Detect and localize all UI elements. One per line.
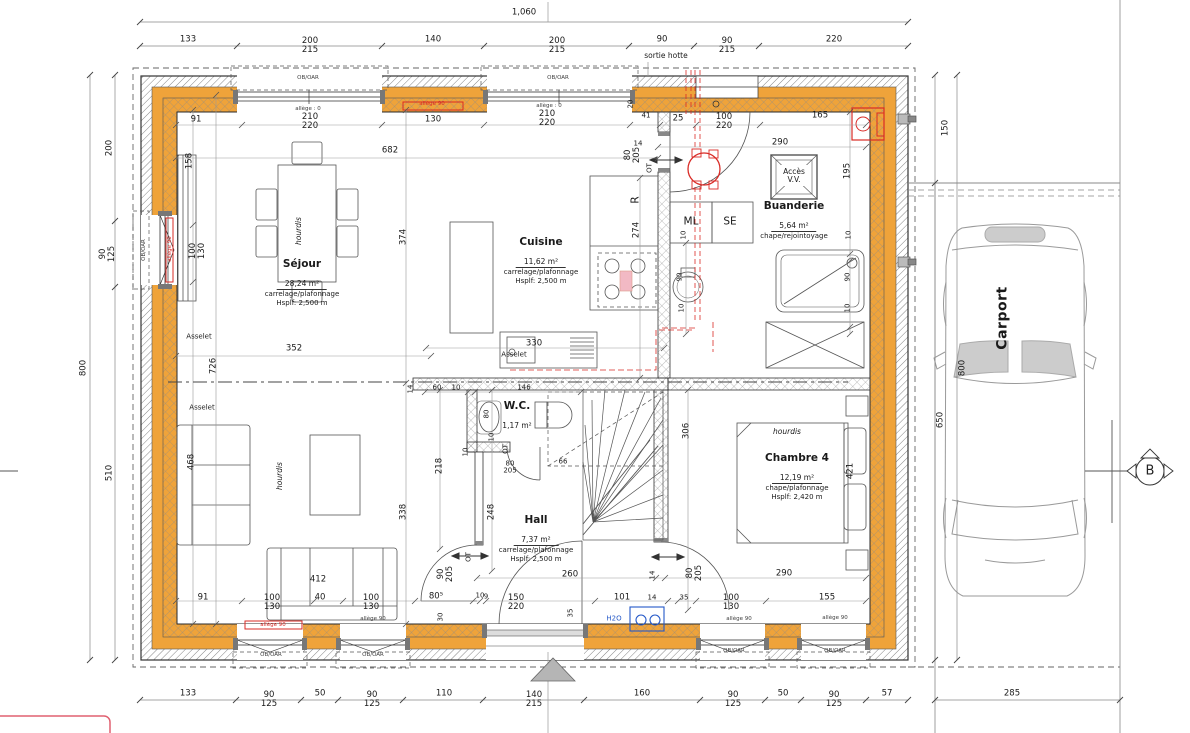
dimension-label: 140 — [425, 36, 441, 45]
dimension-label: 90 125 — [725, 691, 741, 709]
room-area: 28,24 m² — [277, 279, 327, 290]
annotation-label: allège 90 — [168, 236, 174, 261]
room-name: Buanderie — [760, 200, 828, 213]
dimension-label: 510 — [106, 465, 115, 481]
dimension-label: 1,060 — [512, 9, 536, 18]
dimension-label: 10 — [462, 448, 469, 457]
dimension-label: 14 — [407, 385, 414, 394]
room-finish: carrelage/plafonnage — [265, 290, 340, 299]
dimension-label: 80⁵ — [429, 593, 443, 602]
annotation-label: hourdis — [773, 428, 801, 436]
annotation-label: Accès V.V. — [783, 168, 805, 184]
dimension-label: 90 215 — [719, 37, 735, 55]
dimension-label: 30 — [437, 613, 444, 622]
dimension-label: 133 — [180, 36, 196, 45]
dimension-label: 800 — [80, 360, 89, 376]
dimension-label: 20 — [627, 100, 634, 109]
dimension-label: 682 — [382, 147, 398, 156]
room-label-chambre4: Chambre 4 12,19 m² chape/plafonnage Hspl… — [765, 452, 829, 502]
dimension-label: 290 — [776, 570, 792, 579]
annotation-label: Asselet — [501, 351, 526, 358]
dimension-label: 80 205 — [686, 565, 704, 581]
dimension-label: OT — [465, 552, 472, 562]
dimension-label: 50 — [315, 690, 326, 699]
room-label-cuisine: Cuisine 11,62 m² carrelage/plafonnage Hs… — [504, 236, 579, 286]
dimension-label: 90 125 — [826, 691, 842, 709]
room-label-sejour: Séjour 28,24 m² carrelage/plafonnage Hsp… — [265, 258, 340, 308]
room-area: 11,62 m² — [516, 257, 566, 268]
dimension-label: 200 215 — [302, 37, 318, 55]
room-label-wc: W.C. 1,17 m² — [494, 400, 539, 432]
room-name: W.C. — [494, 400, 539, 413]
dimension-label: 10 — [488, 433, 495, 442]
annotation-label: hourdis — [276, 462, 284, 490]
dimension-label: 41 — [642, 112, 651, 119]
dimension-label: 90 125 — [261, 691, 277, 709]
dimension-label: 726 — [210, 358, 219, 374]
labels-layer: Séjour 28,24 m² carrelage/plafonnage Hsp… — [0, 0, 1190, 733]
room-height: Hsplf: 2,420 m — [765, 493, 829, 502]
dimension-label: 101 — [614, 594, 630, 603]
dimension-label: 220 — [826, 36, 842, 45]
dimension-label: 200 215 — [549, 37, 565, 55]
room-height: Hsplf: 2,500 m — [504, 277, 579, 286]
dimension-label: 10 — [452, 384, 461, 391]
annotation-label: allège 90 — [726, 617, 751, 623]
annotation-label: R — [630, 196, 641, 203]
dimension-label: 800 — [959, 360, 968, 376]
dimension-label: 91 — [198, 594, 209, 603]
dimension-label: 130 — [425, 116, 441, 125]
dimension-label: 248 — [488, 504, 497, 520]
dimension-label: 160 — [634, 690, 650, 699]
dimension-label: 150 220 — [508, 594, 524, 612]
dimension-label: 91 — [191, 116, 202, 125]
annotation-label: OB/OAR — [142, 239, 148, 261]
dimension-label: 352 — [286, 345, 302, 354]
dimension-label: 100 130 — [363, 594, 379, 612]
annotation-label: OB/OAR — [824, 649, 846, 655]
dimension-label: 285 — [1004, 690, 1020, 699]
section-marker-b: B — [1146, 464, 1155, 479]
annotation-label: SE — [723, 216, 736, 227]
annotation-label: allège 90 — [260, 623, 285, 629]
dimension-label: 421 — [847, 463, 856, 479]
room-finish: carrelage/plafonnage — [499, 546, 574, 555]
annotation-label: OB/OAR — [297, 76, 319, 82]
dimension-label: OT — [502, 444, 509, 454]
dimension-label: 330 — [526, 340, 542, 349]
annotation-label: Asselet — [186, 333, 211, 340]
dimension-label: 35 — [680, 594, 689, 601]
dimension-label: 90 125 — [99, 246, 117, 262]
annotation-label: allège 90 — [360, 617, 385, 623]
dimension-label: 165 — [812, 112, 828, 121]
dimension-label: 274 — [633, 222, 642, 238]
room-label-buanderie: Buanderie 5,64 m² chape/rejointoyage — [760, 200, 828, 241]
room-height: Hsplf: 2,500 m — [265, 299, 340, 308]
dimension-label: 14 — [648, 594, 657, 601]
room-finish: chape/rejointoyage — [760, 232, 828, 241]
room-label-hall: Hall 7,37 m² carrelage/plafonnage Hsplf:… — [499, 514, 574, 564]
dimension-label: 195 — [844, 163, 853, 179]
dimension-label: 100 130 — [723, 594, 739, 612]
dimension-label: 110 — [436, 690, 452, 699]
dimension-label: 210 220 — [302, 113, 318, 131]
annotation-label: OB/OAR — [260, 653, 282, 659]
room-area: 5,64 m² — [771, 221, 816, 232]
dimension-label: 100 220 — [716, 113, 732, 131]
dimension-label: 9 — [484, 593, 488, 600]
dimension-label: 412 — [310, 576, 326, 585]
room-area: 12,19 m² — [772, 473, 822, 484]
room-height: Hsplf: 2,500 m — [499, 555, 574, 564]
floor-plan-canvas: Séjour 28,24 m² carrelage/plafonnage Hsp… — [0, 0, 1190, 733]
dimension-label: 25 — [673, 115, 684, 124]
dimension-label: 290 — [772, 139, 788, 148]
room-name: Chambre 4 — [765, 452, 829, 465]
dimension-label: 10 — [845, 231, 852, 240]
dimension-label: 80 205 — [624, 147, 642, 163]
dimension-label: 338 — [400, 504, 409, 520]
dimension-label: 14 — [649, 571, 656, 580]
dimension-label: 260 — [562, 571, 578, 580]
dimension-label: 90 — [844, 273, 851, 282]
dimension-label: 90 — [676, 273, 683, 282]
dimension-label: 90 125 — [364, 691, 380, 709]
annotation-label: allège 90 — [822, 616, 847, 622]
room-name: Séjour — [265, 258, 340, 271]
room-finish: chape/plafonnage — [765, 484, 829, 493]
dimension-label: 155 — [819, 594, 835, 603]
dimension-label: 468 — [188, 454, 197, 470]
dimension-label: 90 205 — [437, 566, 455, 582]
dimension-label: 57 — [882, 690, 893, 699]
dimension-label: 10 — [844, 304, 851, 313]
dimension-label: 40 — [315, 594, 326, 603]
dimension-label: 66 — [559, 458, 568, 465]
room-label-carport: Carport — [996, 286, 1011, 349]
dimension-label: 218 — [436, 458, 445, 474]
dimension-label: 210 220 — [539, 110, 555, 128]
dimension-label: 80 205 — [503, 461, 516, 476]
annotation-label: OB/OAR — [723, 649, 745, 655]
annotation-label: ML — [684, 216, 699, 227]
dimension-label: 50 — [778, 690, 789, 699]
dimension-label: 100 130 — [264, 594, 280, 612]
annotation-label: H2O — [606, 615, 621, 622]
room-area: 7,37 m² — [513, 535, 558, 546]
annotation-label: Asselet — [189, 404, 214, 411]
dimension-label: 150 — [942, 120, 951, 136]
dimension-label: 100 130 — [189, 243, 207, 259]
room-finish: carrelage/plafonnage — [504, 268, 579, 277]
dimension-label: 133 — [180, 690, 196, 699]
annotation-label: sortie hotte — [644, 52, 687, 60]
dimension-label: 90 — [657, 36, 668, 45]
annotation-label: hourdis — [295, 217, 303, 245]
dimension-label: 200 — [106, 140, 115, 156]
dimension-label: 10 — [678, 304, 685, 313]
room-name: Hall — [499, 514, 574, 527]
dimension-label: 146 — [517, 384, 530, 391]
annotation-label: allège 90 — [419, 102, 444, 108]
dimension-label: 158 — [186, 153, 195, 169]
dimension-label: OT — [646, 163, 653, 173]
annotation-label: OB/OAR — [547, 76, 569, 82]
dimension-label: 374 — [400, 229, 409, 245]
room-area: 1,17 m² — [494, 421, 539, 431]
annotation-label: OB/OAR — [362, 653, 384, 659]
dimension-label: 140 215 — [526, 691, 542, 709]
dimension-label: 60 — [433, 384, 442, 391]
dimension-label: 80 — [483, 410, 490, 419]
dimension-label: 35 — [567, 609, 574, 618]
dimension-label: 306 — [683, 423, 692, 439]
dimension-label: 10 — [680, 231, 687, 240]
room-name: Cuisine — [504, 236, 579, 249]
dimension-label: 650 — [937, 412, 946, 428]
